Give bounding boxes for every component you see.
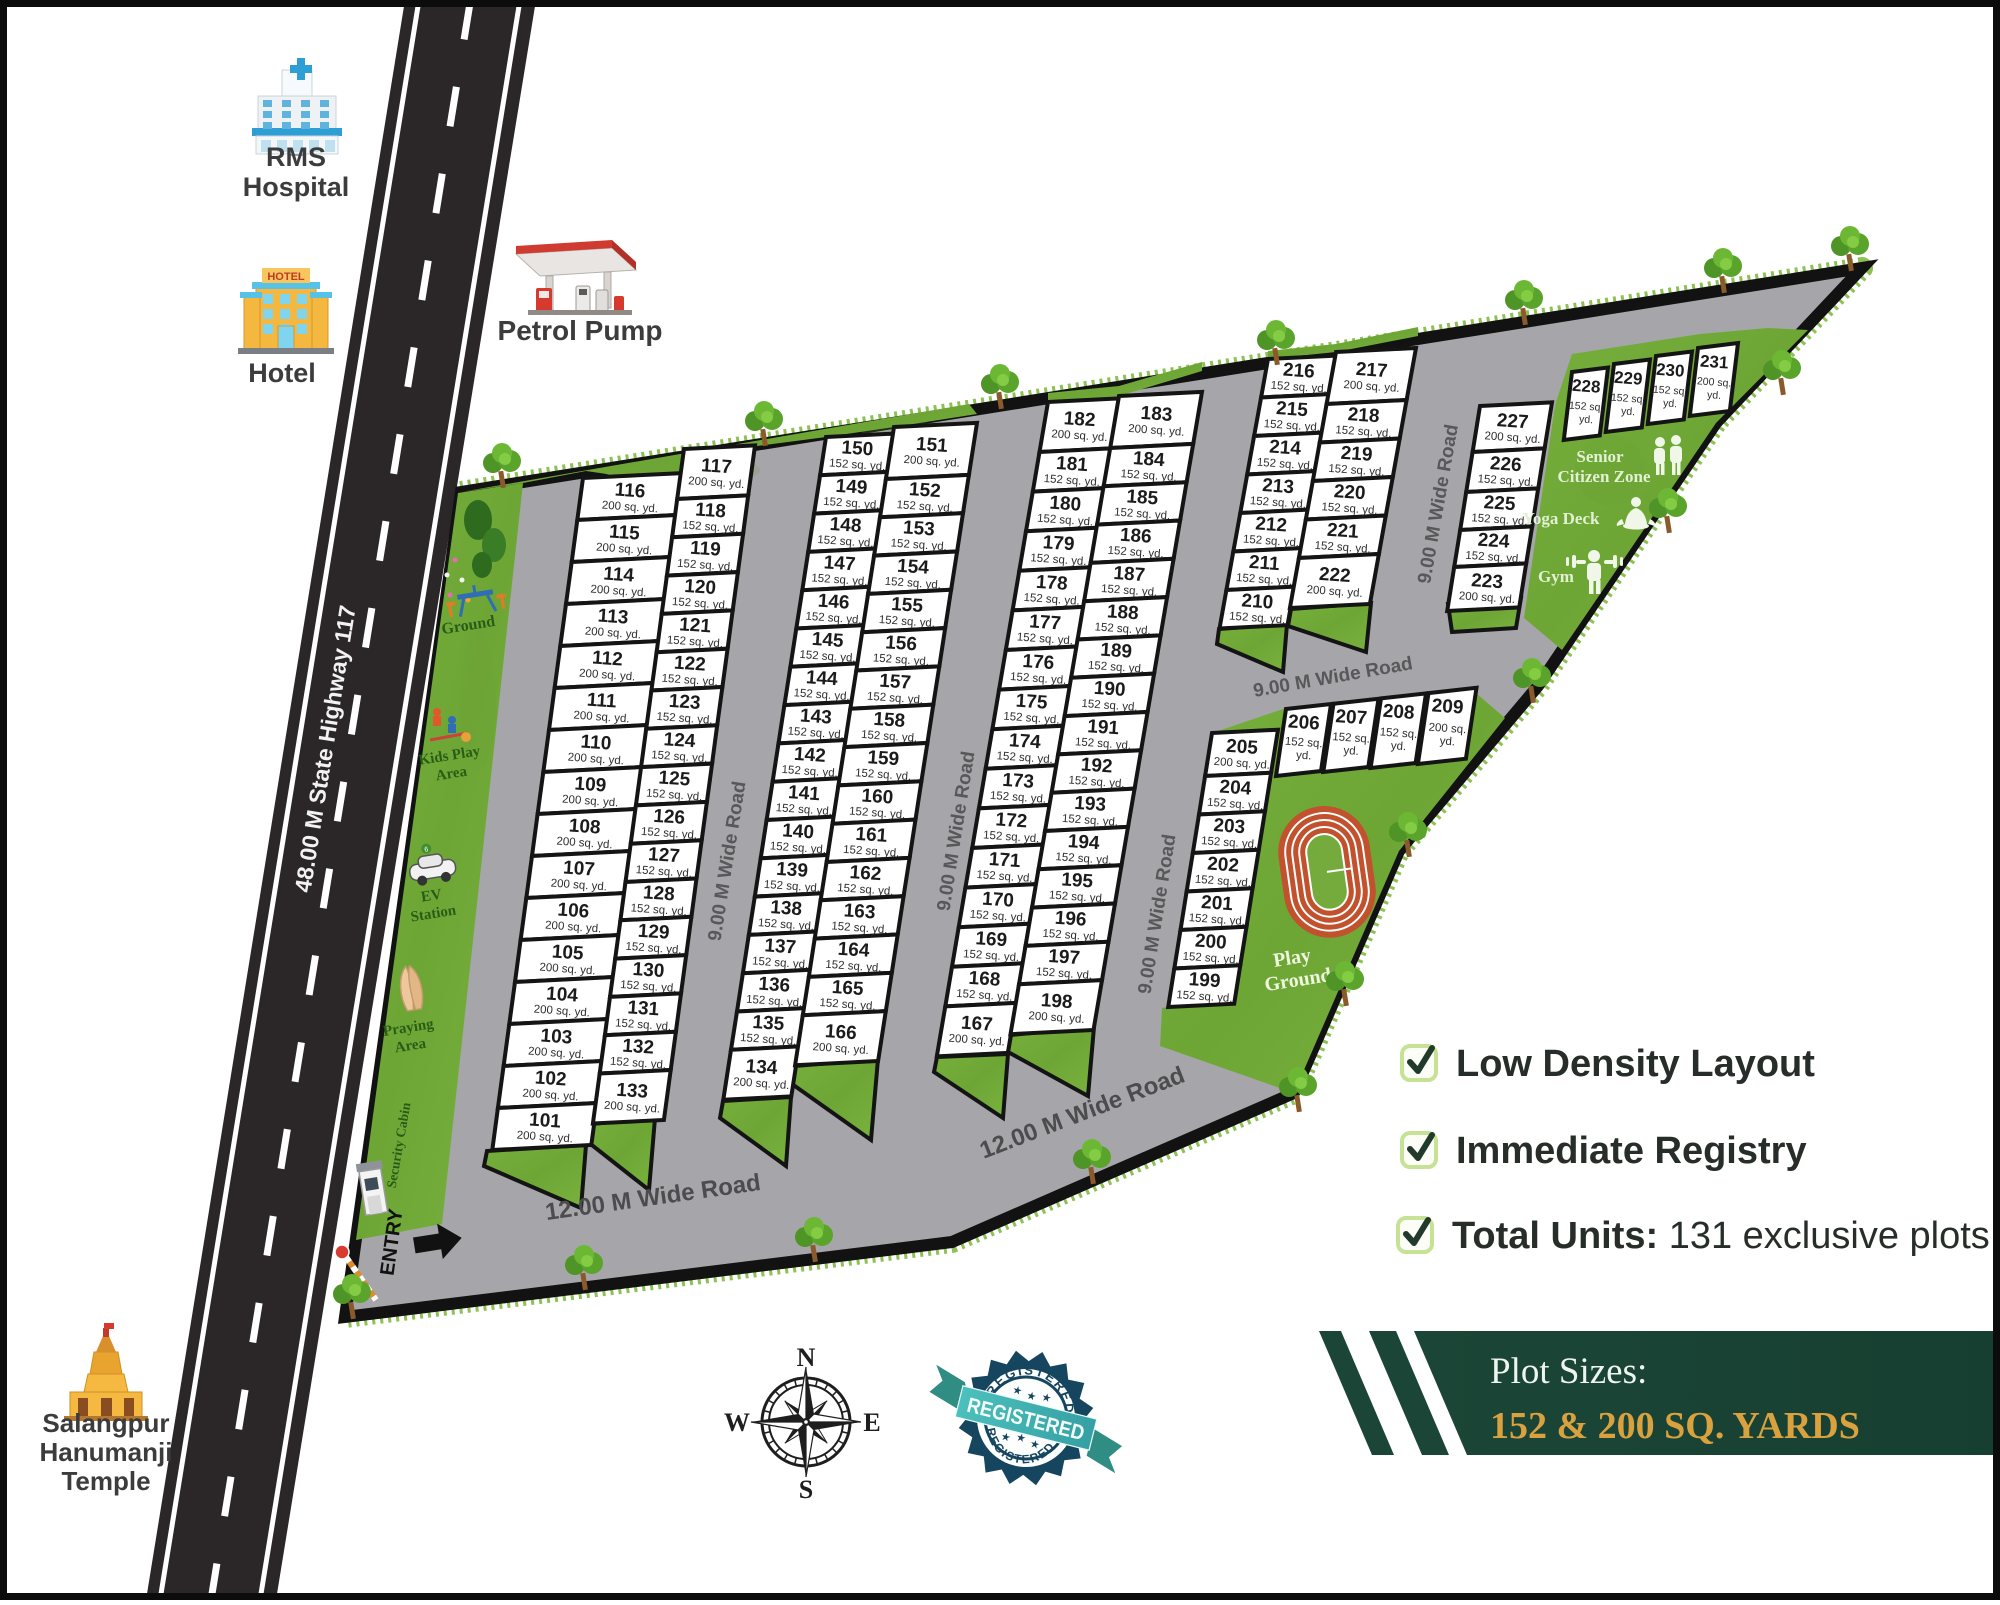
svg-text:129: 129 <box>637 921 670 944</box>
svg-text:164: 164 <box>837 939 871 962</box>
svg-text:179: 179 <box>1042 532 1075 555</box>
svg-text:158: 158 <box>873 709 906 732</box>
svg-text:229: 229 <box>1613 368 1643 389</box>
svg-text:147: 147 <box>823 552 856 575</box>
svg-text:184: 184 <box>1132 448 1166 471</box>
svg-text:145: 145 <box>811 629 845 652</box>
svg-text:216: 216 <box>1282 360 1315 383</box>
svg-text:200 sq.: 200 sq. <box>1697 375 1732 389</box>
svg-text:188: 188 <box>1106 601 1139 624</box>
svg-text:226: 226 <box>1489 453 1522 476</box>
svg-text:yd.: yd. <box>1579 413 1594 426</box>
svg-text:Total Units: 131 exclusive plo: Total Units: 131 exclusive plots <box>1452 1215 1990 1257</box>
svg-text:224: 224 <box>1477 530 1511 553</box>
svg-text:126: 126 <box>653 806 686 829</box>
svg-text:214: 214 <box>1269 437 1303 460</box>
svg-text:222: 222 <box>1318 564 1351 587</box>
svg-text:182: 182 <box>1063 408 1096 431</box>
svg-text:Salangpur: Salangpur <box>42 1408 169 1438</box>
svg-text:111: 111 <box>586 690 617 713</box>
svg-text:206: 206 <box>1287 711 1320 734</box>
svg-text:109: 109 <box>574 773 607 796</box>
svg-text:220: 220 <box>1333 481 1366 504</box>
svg-text:230: 230 <box>1655 360 1685 381</box>
svg-text:211: 211 <box>1248 552 1280 575</box>
svg-text:198: 198 <box>1040 990 1073 1013</box>
svg-text:101: 101 <box>528 1109 562 1132</box>
svg-text:199: 199 <box>1188 969 1221 992</box>
svg-text:133: 133 <box>616 1080 649 1103</box>
svg-text:130: 130 <box>632 959 665 982</box>
svg-text:227: 227 <box>1496 410 1529 433</box>
svg-text:153: 153 <box>902 517 935 540</box>
svg-text:202: 202 <box>1207 854 1240 877</box>
svg-text:124: 124 <box>663 729 697 752</box>
svg-text:134: 134 <box>745 1056 779 1079</box>
svg-text:223: 223 <box>1471 570 1504 593</box>
svg-text:108: 108 <box>568 815 601 838</box>
svg-text:231: 231 <box>1699 352 1729 373</box>
svg-text:208: 208 <box>1382 701 1415 724</box>
svg-text:193: 193 <box>1074 793 1107 816</box>
svg-text:174: 174 <box>1008 730 1042 753</box>
svg-text:144: 144 <box>805 667 839 690</box>
svg-text:169: 169 <box>975 928 1008 951</box>
svg-text:RMS: RMS <box>266 142 326 172</box>
svg-text:167: 167 <box>960 1013 993 1036</box>
svg-text:210: 210 <box>1241 590 1274 613</box>
svg-text:118: 118 <box>695 499 727 522</box>
svg-text:110: 110 <box>580 731 612 754</box>
svg-text:yd.: yd. <box>1343 745 1359 758</box>
svg-text:yd.: yd. <box>1390 740 1406 753</box>
svg-text:S: S <box>799 1475 813 1504</box>
svg-text:104: 104 <box>545 983 579 1006</box>
svg-text:191: 191 <box>1087 716 1121 739</box>
svg-text:HOTEL: HOTEL <box>267 271 305 283</box>
svg-text:213: 213 <box>1262 475 1295 498</box>
svg-text:200: 200 <box>1194 931 1227 954</box>
svg-text:176: 176 <box>1022 651 1055 674</box>
svg-text:140: 140 <box>782 820 815 843</box>
svg-text:Temple: Temple <box>61 1466 150 1496</box>
svg-text:Hanumanji: Hanumanji <box>40 1437 173 1467</box>
svg-text:Immediate Registry: Immediate Registry <box>1456 1130 1807 1172</box>
svg-text:Plot Sizes:: Plot Sizes: <box>1490 1351 1647 1392</box>
svg-text:Gym: Gym <box>1538 567 1574 586</box>
svg-text:107: 107 <box>562 857 595 880</box>
svg-text:yd.: yd. <box>1621 405 1636 418</box>
svg-text:138: 138 <box>770 897 803 920</box>
svg-text:148: 148 <box>829 514 862 537</box>
svg-text:135: 135 <box>752 1012 786 1035</box>
svg-text:Senior: Senior <box>1576 447 1624 466</box>
svg-text:139: 139 <box>776 859 809 882</box>
svg-text:181: 181 <box>1055 453 1089 476</box>
svg-text:128: 128 <box>642 882 675 905</box>
svg-text:212: 212 <box>1255 513 1288 536</box>
svg-text:132: 132 <box>622 1036 655 1059</box>
svg-text:194: 194 <box>1067 831 1101 854</box>
svg-text:137: 137 <box>764 935 797 958</box>
svg-text:Petrol Pump: Petrol Pump <box>498 315 663 346</box>
svg-text:204: 204 <box>1219 777 1253 800</box>
svg-text:161: 161 <box>855 824 889 847</box>
svg-text:178: 178 <box>1035 572 1068 595</box>
svg-text:217: 217 <box>1355 359 1388 382</box>
svg-text:228: 228 <box>1571 376 1601 397</box>
svg-text:141: 141 <box>787 782 821 805</box>
svg-text:143: 143 <box>799 705 832 728</box>
svg-text:218: 218 <box>1347 404 1380 427</box>
svg-text:185: 185 <box>1126 486 1160 509</box>
svg-text:187: 187 <box>1113 563 1146 586</box>
svg-text:Low Density Layout: Low Density Layout <box>1456 1043 1815 1085</box>
svg-text:142: 142 <box>793 744 826 767</box>
svg-text:EV: EV <box>420 886 443 905</box>
svg-text:150: 150 <box>841 437 874 460</box>
svg-text:168: 168 <box>968 968 1001 991</box>
svg-text:205: 205 <box>1225 736 1259 759</box>
svg-text:102: 102 <box>534 1067 567 1090</box>
svg-text:Citizen Zone: Citizen Zone <box>1557 467 1650 486</box>
svg-text:yd.: yd. <box>1439 735 1455 748</box>
svg-text:yd.: yd. <box>1296 749 1312 762</box>
svg-text:152 sq.: 152 sq. <box>1611 392 1646 406</box>
svg-text:103: 103 <box>540 1025 573 1048</box>
svg-text:yd.: yd. <box>1663 397 1678 410</box>
svg-text:117: 117 <box>700 455 732 478</box>
svg-text:166: 166 <box>824 1021 857 1044</box>
svg-text:209: 209 <box>1431 695 1464 718</box>
svg-text:123: 123 <box>668 691 701 714</box>
svg-text:197: 197 <box>1048 946 1081 969</box>
svg-text:172: 172 <box>995 809 1028 832</box>
svg-text:105: 105 <box>551 941 585 964</box>
svg-text:152: 152 <box>908 479 941 502</box>
svg-text:215: 215 <box>1275 398 1309 421</box>
svg-text:189: 189 <box>1100 640 1133 663</box>
svg-text:125: 125 <box>658 767 692 790</box>
svg-text:yd.: yd. <box>1707 389 1722 402</box>
svg-text:195: 195 <box>1061 869 1095 892</box>
svg-text:171: 171 <box>988 849 1022 872</box>
svg-text:Hospital: Hospital <box>243 172 350 202</box>
svg-text:112: 112 <box>591 647 623 670</box>
svg-text:162: 162 <box>849 862 882 885</box>
svg-text:221: 221 <box>1326 520 1360 543</box>
svg-text:180: 180 <box>1049 493 1082 516</box>
svg-text:207: 207 <box>1335 706 1368 729</box>
svg-text:113: 113 <box>597 605 629 628</box>
svg-text:W: W <box>724 1408 750 1437</box>
svg-text:201: 201 <box>1200 892 1234 915</box>
svg-text:160: 160 <box>861 785 894 808</box>
svg-text:186: 186 <box>1119 525 1152 548</box>
svg-text:225: 225 <box>1483 492 1517 515</box>
svg-text:120: 120 <box>684 576 717 599</box>
svg-text:175: 175 <box>1015 691 1049 714</box>
svg-text:152 sq.: 152 sq. <box>1569 400 1604 414</box>
svg-text:121: 121 <box>679 614 713 637</box>
svg-text:152 sq.: 152 sq. <box>1653 384 1688 398</box>
svg-text:114: 114 <box>603 563 635 586</box>
svg-text:122: 122 <box>673 653 706 676</box>
svg-text:Yoga Deck: Yoga Deck <box>1523 509 1601 528</box>
svg-text:152 & 200 SQ. YARDS: 152 & 200 SQ. YARDS <box>1490 1405 1860 1447</box>
svg-text:190: 190 <box>1093 678 1126 701</box>
svg-text:106: 106 <box>557 899 590 922</box>
svg-text:154: 154 <box>896 556 930 579</box>
svg-text:131: 131 <box>627 997 661 1020</box>
svg-text:127: 127 <box>647 844 680 867</box>
svg-text:115: 115 <box>608 521 640 544</box>
svg-text:E: E <box>863 1408 880 1437</box>
svg-text:157: 157 <box>879 671 912 694</box>
svg-text:159: 159 <box>867 747 900 770</box>
svg-text:146: 146 <box>817 591 850 614</box>
svg-text:177: 177 <box>1029 611 1062 634</box>
svg-text:156: 156 <box>885 632 918 655</box>
svg-text:149: 149 <box>835 476 868 499</box>
svg-text:119: 119 <box>689 538 721 561</box>
svg-text:136: 136 <box>758 974 791 997</box>
svg-text:165: 165 <box>831 977 865 1000</box>
svg-text:219: 219 <box>1340 443 1373 466</box>
svg-text:151: 151 <box>915 434 949 457</box>
svg-text:196: 196 <box>1054 908 1087 931</box>
svg-text:183: 183 <box>1140 403 1173 426</box>
svg-text:155: 155 <box>891 594 925 617</box>
svg-text:N: N <box>797 1343 816 1372</box>
svg-text:170: 170 <box>981 889 1014 912</box>
svg-text:192: 192 <box>1080 754 1113 777</box>
svg-text:173: 173 <box>1002 770 1035 793</box>
svg-text:116: 116 <box>614 479 646 502</box>
svg-text:163: 163 <box>843 900 876 923</box>
svg-text:Hotel: Hotel <box>248 358 316 388</box>
svg-text:203: 203 <box>1213 815 1246 838</box>
